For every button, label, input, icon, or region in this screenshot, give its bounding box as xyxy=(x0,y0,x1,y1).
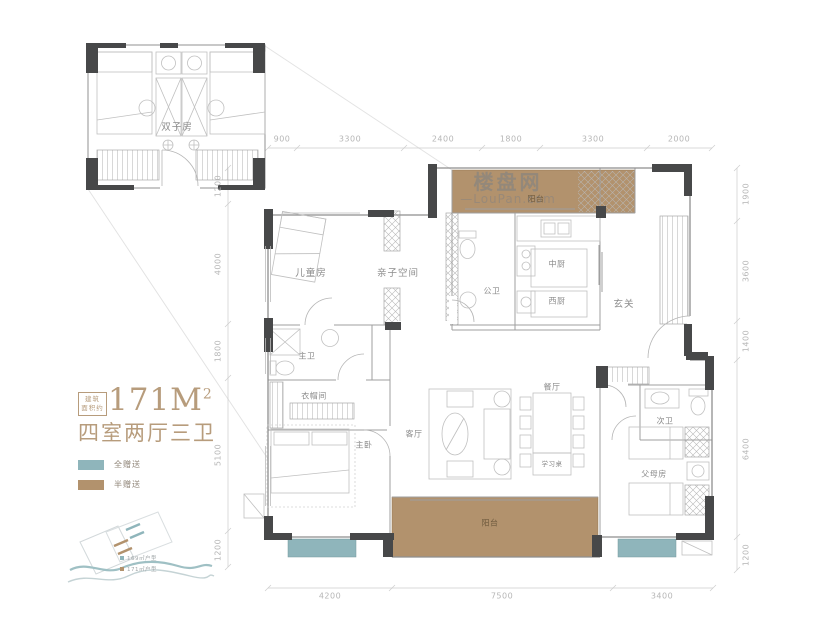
caption-text-1: 169㎡户型 xyxy=(127,554,157,562)
dim-right-2: 1400 xyxy=(742,330,751,352)
dim-left-3: 5100 xyxy=(214,444,223,466)
dim-right-4: 1200 xyxy=(742,544,751,566)
room-label-twin-room: 双子房 xyxy=(161,119,193,133)
dim-top-1: 3300 xyxy=(339,135,361,144)
layout-title: 四室两厅三卫 xyxy=(78,417,216,447)
area-value: 171M2 xyxy=(108,382,213,418)
bay-window-parents xyxy=(618,539,676,557)
legend-full-gift: 全赠送 xyxy=(78,459,141,470)
dim-top-5: 2000 xyxy=(668,135,690,144)
dim-bottom-0: 4200 xyxy=(319,592,341,601)
room-label-chinese-kitchen: 中厨 xyxy=(549,259,566,270)
room-label-cloakroom: 衣帽间 xyxy=(301,391,327,402)
dim-top-2: 2400 xyxy=(432,135,454,144)
floorplan-page: 双子房 儿童房 亲子空间 公卫 中厨 西厨 玄关 阳台 主卫 衣帽间 主卧 客厅… xyxy=(0,0,827,634)
thumbnail-caption-1: 169㎡户型 xyxy=(120,554,157,562)
dim-top-3: 1800 xyxy=(500,135,522,144)
legend-label-half-gift: 半赠送 xyxy=(114,479,141,490)
dim-top-0: 900 xyxy=(274,135,291,144)
thumbnail-caption-2: 171㎡户型 xyxy=(120,565,157,573)
caption-dot-tan xyxy=(120,567,124,571)
room-label-second-bath: 次卫 xyxy=(657,416,674,427)
legend-swatch-teal xyxy=(78,460,104,470)
room-label-master-bath: 主卫 xyxy=(299,351,316,362)
caption-dot-teal xyxy=(120,556,124,560)
room-label-family-space: 亲子空间 xyxy=(377,265,419,279)
inset-room-drawing xyxy=(86,43,265,192)
caption-text-2: 171㎡户型 xyxy=(127,565,157,573)
area-superscript: 2 xyxy=(203,387,213,403)
dim-bottom-1: 7500 xyxy=(491,592,513,601)
dim-bottom-2: 3400 xyxy=(651,592,673,601)
room-label-western-kitchen: 西厨 xyxy=(549,296,566,307)
room-label-balcony-top: 阳台 xyxy=(528,194,545,205)
bay-window-master xyxy=(288,539,356,557)
dim-left-0: 1200 xyxy=(214,175,223,197)
room-label-study-desk: 学习桌 xyxy=(542,458,563,468)
dim-right-1: 3600 xyxy=(742,260,751,282)
siteplan-thumbnail xyxy=(66,502,216,597)
area-note-line2: 面积约 xyxy=(81,404,104,413)
legend-label-full-gift: 全赠送 xyxy=(114,459,141,470)
room-label-kids-room: 儿童房 xyxy=(295,265,327,279)
legend-swatch-tan xyxy=(78,480,104,490)
dim-right-0: 1900 xyxy=(742,183,751,205)
gift-area-fills xyxy=(288,170,676,557)
interior-walls xyxy=(268,168,712,537)
area-note-box: 建筑 面积约 xyxy=(78,392,107,416)
room-label-dining-room: 餐厅 xyxy=(544,382,561,393)
room-label-balcony-bottom: 阳台 xyxy=(482,518,499,529)
dim-left-1: 4000 xyxy=(214,253,223,275)
room-label-living-room: 客厅 xyxy=(406,429,423,440)
room-label-guest-bath: 公卫 xyxy=(484,286,501,297)
dim-right-3: 6400 xyxy=(742,438,751,460)
room-label-foyer: 玄关 xyxy=(613,296,634,310)
area-note-line1: 建筑 xyxy=(85,395,100,404)
area-number: 171M xyxy=(108,382,203,418)
dim-left-2: 1800 xyxy=(214,340,223,362)
room-label-parents-room: 父母房 xyxy=(641,469,667,480)
dim-top-4: 3300 xyxy=(582,135,604,144)
legend-half-gift: 半赠送 xyxy=(78,479,141,490)
room-label-master-bedroom: 主卧 xyxy=(356,440,373,451)
